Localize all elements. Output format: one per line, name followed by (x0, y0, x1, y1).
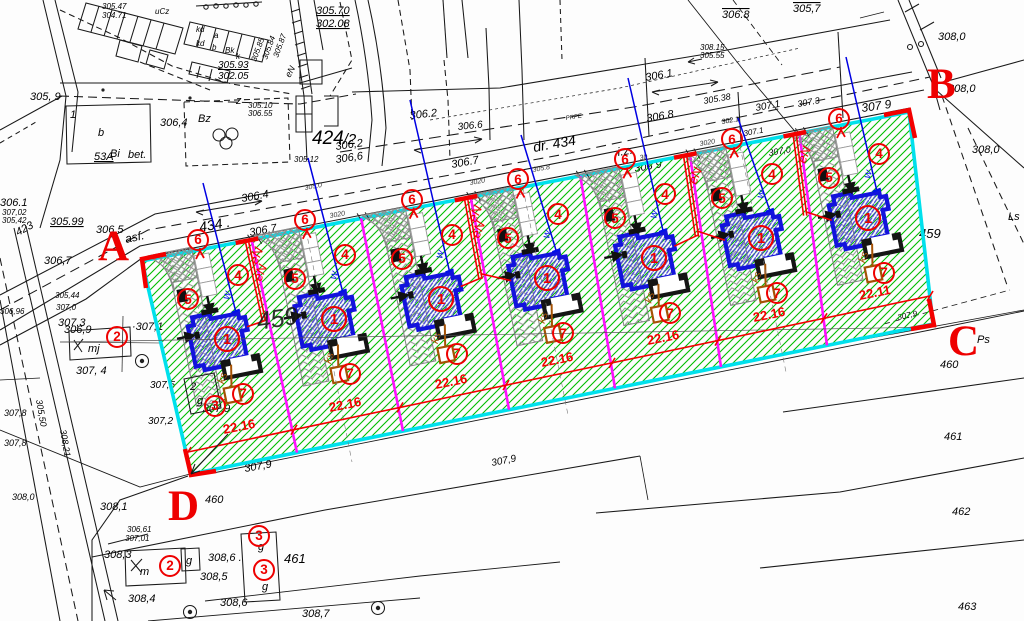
svg-text:bet.: bet. (128, 149, 146, 161)
svg-text:7: 7 (559, 326, 567, 341)
svg-text:4: 4 (234, 268, 242, 283)
svg-text:463: 463 (958, 601, 977, 613)
svg-text:7: 7 (346, 366, 354, 381)
svg-text:305.47: 305.47 (102, 2, 127, 11)
svg-text:4: 4 (661, 187, 669, 202)
svg-text:307,0: 307,0 (56, 303, 77, 312)
svg-text:307,8: 307,8 (4, 408, 27, 418)
svg-text:1: 1 (330, 311, 338, 328)
svg-text:460: 460 (205, 494, 224, 506)
svg-text:306,7: 306,7 (44, 255, 72, 267)
svg-text:kd: kd (196, 25, 205, 34)
svg-text:1: 1 (70, 109, 76, 121)
svg-text:308,0: 308,0 (12, 492, 35, 502)
svg-text:305.55: 305.55 (700, 51, 725, 60)
svg-text:305.70: 305.70 (316, 5, 351, 17)
svg-text:305,44: 305,44 (55, 291, 80, 300)
svg-text:b: b (212, 43, 217, 52)
svg-text:305.99: 305.99 (50, 216, 84, 228)
svg-text:mj: mj (88, 343, 100, 355)
svg-text:5: 5 (825, 170, 833, 185)
svg-text:6: 6 (514, 172, 522, 187)
svg-text:305,7: 305,7 (793, 3, 821, 15)
svg-text:307,8: 307,8 (4, 438, 27, 448)
svg-text:4: 4 (875, 146, 883, 161)
svg-text:308,1: 308,1 (100, 501, 128, 513)
svg-text:4: 4 (768, 167, 776, 182)
svg-text:305, 9: 305, 9 (30, 91, 61, 103)
svg-text:4: 4 (554, 207, 562, 222)
svg-text:306.55: 306.55 (248, 109, 273, 118)
svg-text:m: m (140, 566, 149, 578)
svg-text:1: 1 (864, 210, 872, 227)
svg-text:5: 5 (398, 251, 406, 266)
svg-text:1: 1 (757, 230, 765, 247)
svg-text:306,4: 306,4 (160, 117, 188, 129)
svg-text:306,61: 306,61 (127, 525, 151, 534)
svg-text:5: 5 (184, 292, 192, 307)
svg-text:3: 3 (211, 398, 219, 413)
svg-text:302.08: 302.08 (316, 18, 351, 30)
svg-text:308,7: 308,7 (302, 608, 330, 620)
svg-text:3: 3 (255, 528, 263, 543)
svg-text:304.71: 304.71 (102, 11, 126, 20)
svg-text:5: 5 (611, 211, 619, 226)
svg-text:b: b (98, 127, 104, 139)
svg-text:5: 5 (504, 231, 512, 246)
svg-text:7: 7 (239, 386, 247, 401)
svg-text:g: g (262, 581, 269, 593)
svg-text:6: 6 (301, 212, 309, 227)
svg-text:308,4: 308,4 (128, 593, 156, 605)
svg-text:z: z (235, 95, 242, 107)
svg-text:305.93: 305.93 (218, 60, 249, 71)
svg-text:kd: kd (196, 39, 205, 48)
svg-text:7: 7 (453, 346, 461, 361)
svg-text:6: 6 (835, 111, 843, 126)
svg-text:462: 462 (952, 506, 970, 518)
svg-text:308,0: 308,0 (972, 144, 1000, 156)
svg-text:1: 1 (223, 331, 231, 348)
svg-text:308,5: 308,5 (200, 571, 228, 583)
svg-text:1: 1 (437, 291, 445, 308)
svg-text:308,0: 308,0 (938, 31, 966, 43)
svg-text:306.8: 306.8 (722, 9, 750, 21)
svg-text:7: 7 (773, 286, 781, 301)
svg-text:6: 6 (728, 132, 736, 147)
svg-text:D: D (168, 483, 199, 530)
svg-text:5: 5 (291, 271, 299, 286)
svg-text:3: 3 (260, 562, 268, 577)
svg-text:Bz: Bz (198, 113, 211, 125)
svg-text:4: 4 (448, 227, 456, 242)
svg-text:7: 7 (880, 265, 888, 280)
svg-text:305,42: 305,42 (2, 216, 27, 225)
svg-text:2: 2 (166, 558, 174, 573)
svg-text:B: B (927, 61, 956, 108)
svg-text:308,6 .: 308,6 . (208, 552, 242, 564)
svg-text:6: 6 (194, 232, 202, 247)
svg-text:g: g (197, 395, 204, 407)
svg-text:Bk: Bk (225, 46, 235, 55)
svg-text:307,3: 307,3 (58, 317, 86, 329)
svg-text:g: g (186, 555, 193, 567)
svg-text:1: 1 (650, 250, 658, 267)
svg-text:a: a (214, 31, 219, 40)
svg-text:307, 4: 307, 4 (76, 365, 107, 377)
svg-text:C: C (948, 318, 979, 365)
svg-text:305.12: 305.12 (294, 155, 319, 164)
svg-text:uCz: uCz (155, 7, 169, 16)
svg-text:2: 2 (113, 329, 121, 344)
svg-text:7: 7 (666, 306, 674, 321)
svg-text:307,2: 307,2 (148, 416, 173, 427)
svg-text:A: A (98, 223, 129, 270)
svg-text:308,6: 308,6 (220, 597, 248, 609)
svg-text:1: 1 (543, 270, 551, 287)
svg-text:302.05: 302.05 (218, 71, 249, 82)
svg-text:5: 5 (718, 191, 726, 206)
svg-text:6: 6 (621, 152, 629, 167)
svg-text:461: 461 (284, 551, 306, 566)
svg-text:Bi: Bi (110, 148, 120, 160)
svg-text:461: 461 (944, 431, 962, 443)
svg-text:2: 2 (189, 381, 196, 393)
svg-text:Ls: Ls (1008, 211, 1020, 223)
svg-text:6: 6 (408, 192, 416, 207)
svg-text:4: 4 (341, 247, 349, 262)
